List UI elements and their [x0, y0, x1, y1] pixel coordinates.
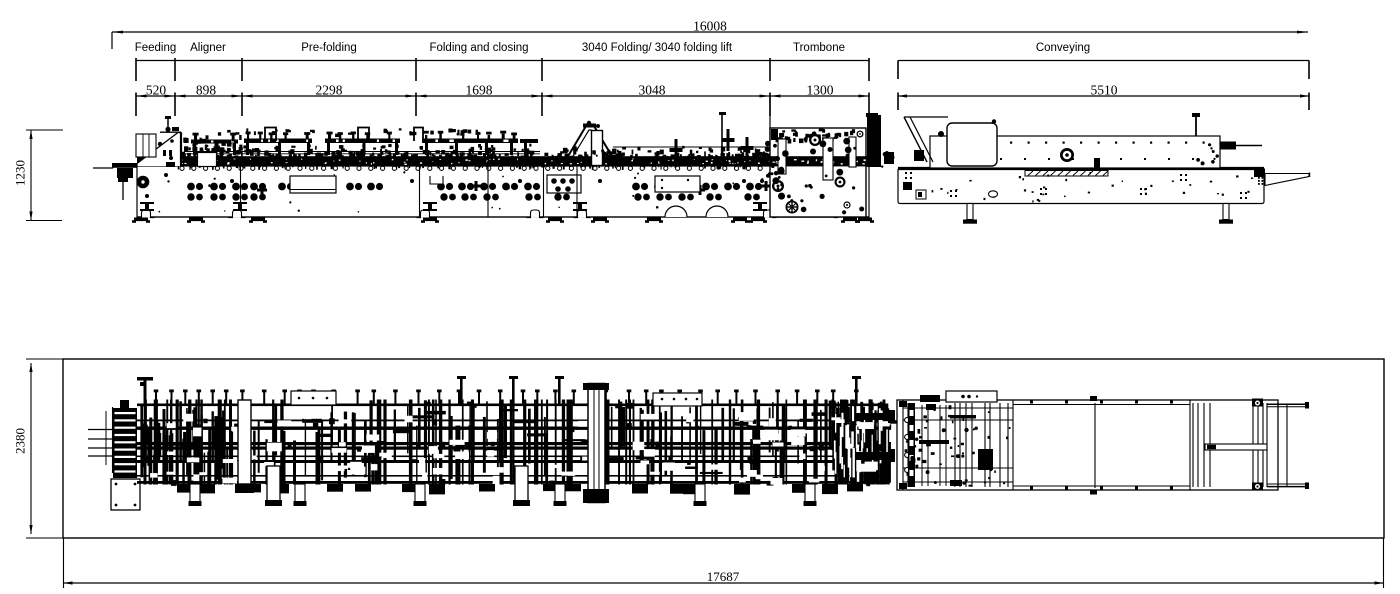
svg-text:2298: 2298 [316, 83, 343, 98]
svg-text:Pre-folding: Pre-folding [301, 42, 357, 54]
svg-text:Feeding: Feeding [135, 42, 177, 54]
svg-text:Conveying: Conveying [1036, 42, 1090, 54]
svg-text:1300: 1300 [807, 83, 834, 98]
svg-text:Aligner: Aligner [190, 42, 226, 54]
svg-text:Trombone: Trombone [793, 42, 845, 54]
svg-text:5510: 5510 [1091, 83, 1118, 98]
svg-text:Folding and closing: Folding and closing [429, 42, 528, 54]
svg-text:1230: 1230 [13, 160, 28, 186]
svg-text:1698: 1698 [466, 83, 493, 98]
svg-text:16008: 16008 [693, 19, 727, 34]
svg-text:3040 Folding/ 3040 folding lif: 3040 Folding/ 3040 folding lift [582, 42, 733, 54]
svg-text:520: 520 [146, 83, 167, 98]
svg-text:17687: 17687 [707, 569, 740, 584]
svg-text:2380: 2380 [13, 428, 28, 454]
svg-text:3048: 3048 [639, 83, 666, 98]
svg-text:898: 898 [196, 83, 217, 98]
